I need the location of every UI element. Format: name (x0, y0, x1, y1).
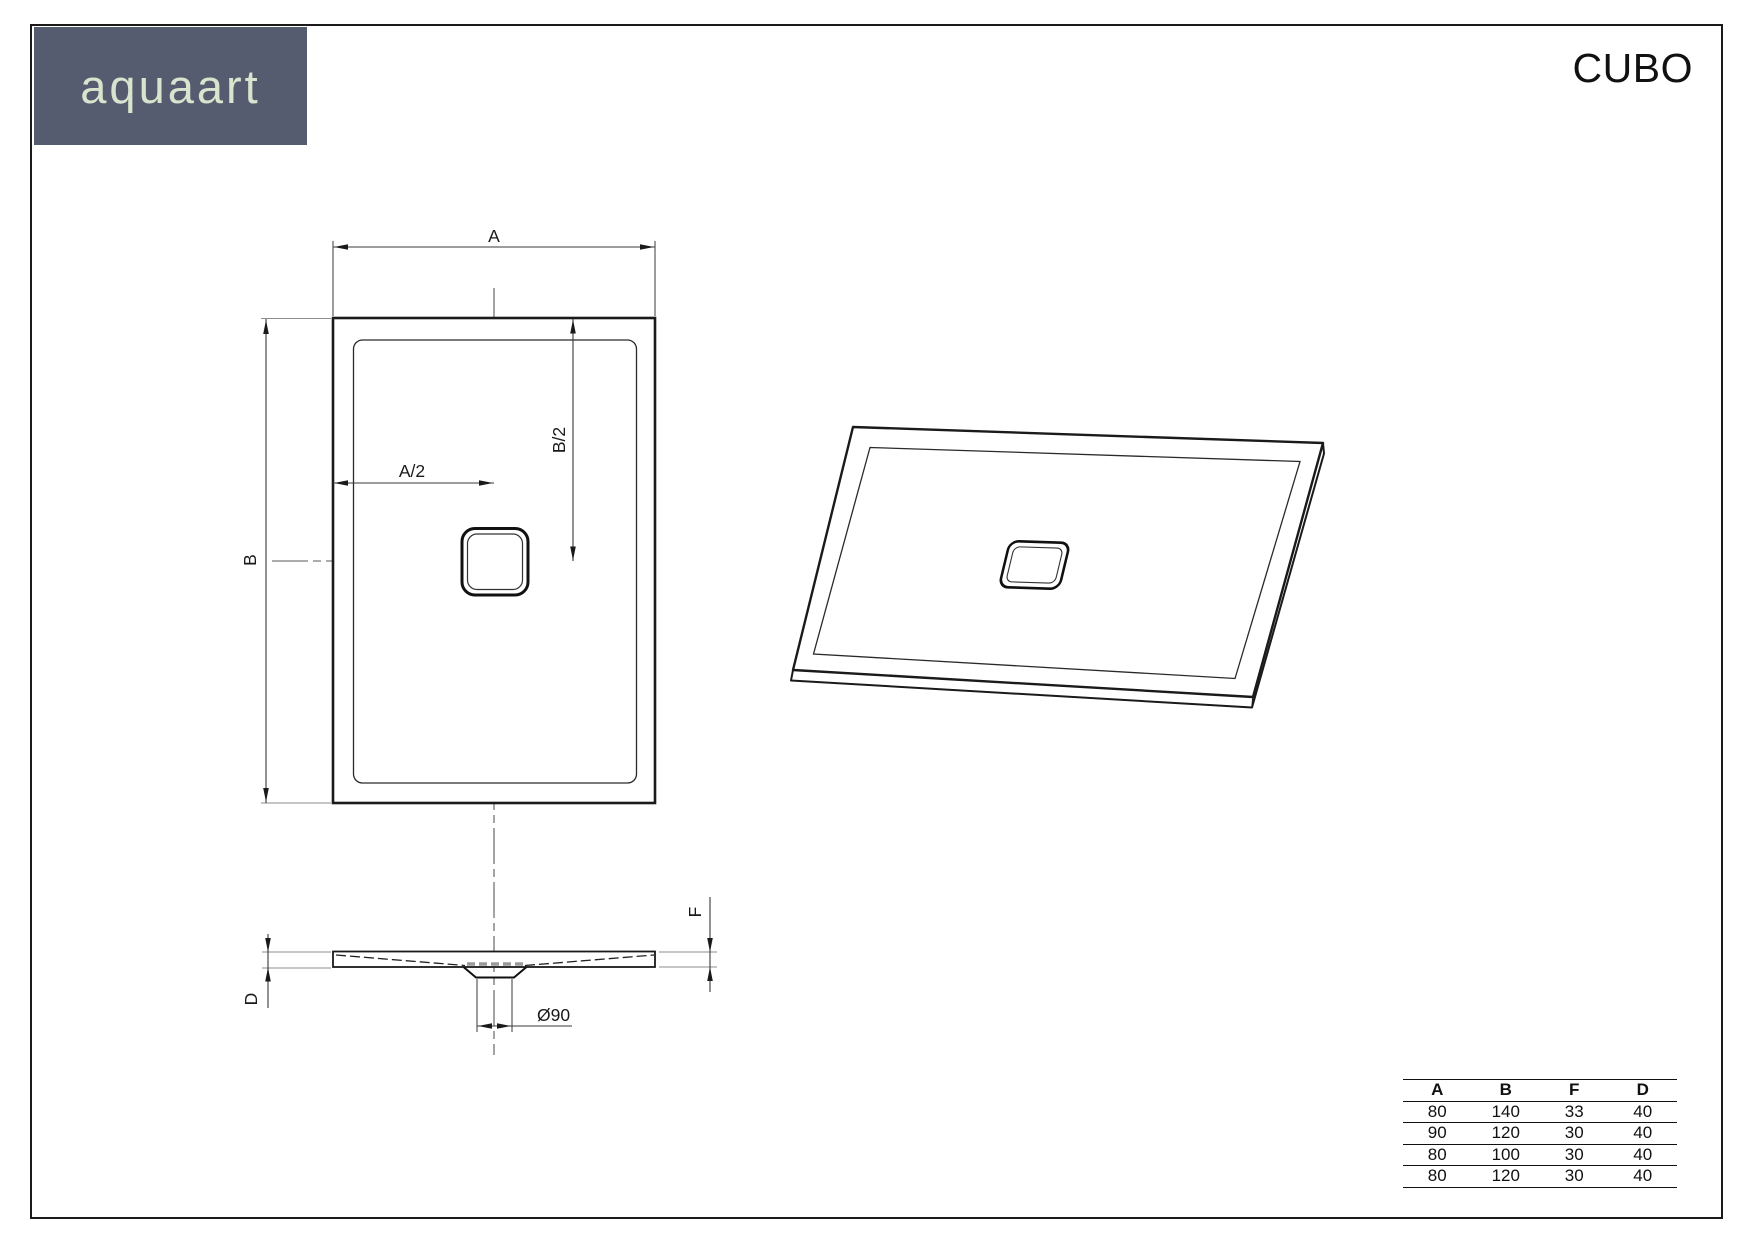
size-table-cell: 33 (1540, 1101, 1609, 1123)
plan-view (272, 288, 655, 1055)
isometric-view (791, 427, 1324, 708)
size-table-cell: 80 (1403, 1101, 1472, 1123)
dim-label-drain-diameter: Ø90 (537, 1005, 570, 1025)
dim-label-b: B (240, 554, 260, 566)
size-table-cell: 120 (1472, 1166, 1541, 1188)
dim-label-a: A (488, 226, 500, 246)
drain-sump (464, 967, 527, 978)
size-table-header: F (1540, 1080, 1609, 1102)
dim-label-d: D (241, 993, 261, 1006)
size-table-cell: 30 (1540, 1144, 1609, 1166)
technical-drawing: A A/2 B B/2 (0, 0, 1755, 1241)
dim-label-f: F (685, 907, 705, 918)
size-table-row: 90 120 30 40 (1403, 1123, 1677, 1145)
size-table-row: 80 120 30 40 (1403, 1166, 1677, 1188)
size-table-header: D (1609, 1080, 1678, 1102)
size-table-header: B (1472, 1080, 1541, 1102)
size-table-cell: 120 (1472, 1123, 1541, 1145)
size-table-cell: 80 (1403, 1144, 1472, 1166)
size-table-cell: 40 (1609, 1123, 1678, 1145)
datasheet-page: aquaart CUBO A (0, 0, 1755, 1241)
dim-label-b-half: B/2 (549, 427, 569, 453)
drain-cover-outer (462, 529, 528, 596)
size-table-cell: 40 (1609, 1101, 1678, 1123)
size-table-header: A (1403, 1080, 1472, 1102)
size-table-cell: 80 (1403, 1166, 1472, 1188)
size-table-cell: 40 (1609, 1166, 1678, 1188)
size-table-cell: 30 (1540, 1123, 1609, 1145)
size-table-cell: 140 (1472, 1101, 1541, 1123)
size-table: A B F D 80 140 33 40 90 120 30 40 80 100… (1403, 1079, 1677, 1188)
size-table-header-row: A B F D (1403, 1080, 1677, 1102)
size-table-cell: 30 (1540, 1166, 1609, 1188)
size-table-cell: 40 (1609, 1144, 1678, 1166)
section-view (333, 952, 655, 978)
iso-drain-cover (999, 541, 1070, 589)
size-table-cell: 100 (1472, 1144, 1541, 1166)
size-table-cell: 90 (1403, 1123, 1472, 1145)
size-table-row: 80 100 30 40 (1403, 1144, 1677, 1166)
dim-label-a-half: A/2 (399, 461, 425, 481)
iso-corner-edge (1252, 697, 1253, 708)
size-table-row: 80 140 33 40 (1403, 1101, 1677, 1123)
